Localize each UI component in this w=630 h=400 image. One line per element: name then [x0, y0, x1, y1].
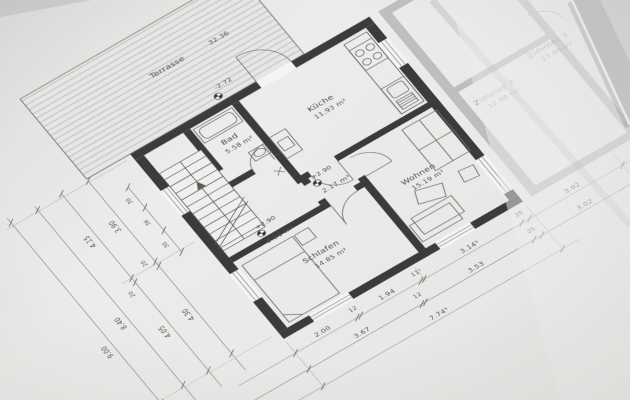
photo-of-floorplan: { "plan": { "rooms": { "terrasse": { "na…	[0, 0, 630, 400]
floorplan-drawing: Terrasse 32.36 -2.72 Zimmer 2 12.98 m² Z…	[0, 0, 630, 400]
photo-vignette	[0, 0, 630, 400]
